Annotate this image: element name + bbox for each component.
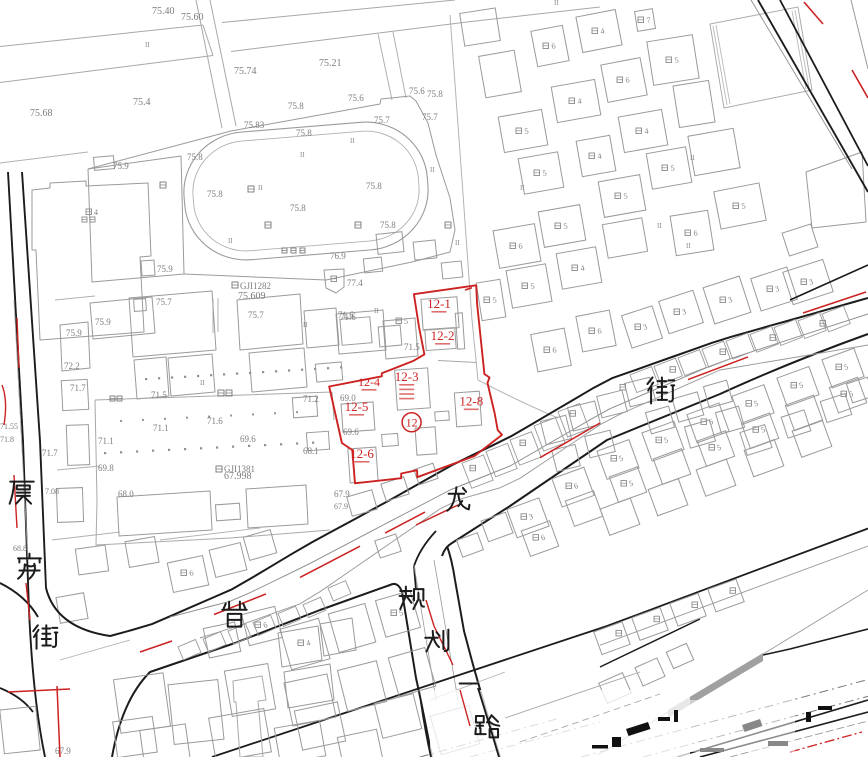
svg-text:II: II [657, 222, 662, 230]
svg-text:75.7: 75.7 [374, 115, 390, 125]
svg-text:69.6: 69.6 [240, 434, 256, 444]
svg-text:71.8: 71.8 [0, 435, 14, 444]
svg-text:12-2: 12-2 [431, 328, 455, 343]
svg-text:12-4: 12-4 [358, 375, 380, 389]
svg-text:II: II [374, 307, 379, 315]
svg-text:69.8: 69.8 [98, 463, 114, 473]
svg-text:75.6: 75.6 [348, 93, 364, 103]
svg-text:71.5: 71.5 [151, 390, 167, 400]
svg-text:75.8: 75.8 [366, 181, 382, 191]
svg-text:71.7: 71.7 [70, 383, 86, 393]
svg-text:75.83: 75.83 [244, 120, 265, 130]
svg-text:GJI1381: GJI1381 [224, 464, 255, 474]
svg-text:75.40: 75.40 [152, 6, 175, 17]
svg-text:72.2: 72.2 [64, 361, 80, 371]
svg-text:II: II [258, 184, 263, 192]
svg-text:75.9: 75.9 [113, 161, 129, 171]
svg-text:75.7: 75.7 [248, 310, 264, 320]
svg-text:68.8: 68.8 [13, 544, 27, 553]
svg-text:75.8: 75.8 [380, 220, 396, 230]
svg-text:4: 4 [94, 208, 98, 217]
svg-text:II: II [430, 166, 435, 174]
svg-text:II: II [554, 0, 559, 7]
svg-text:75.9: 75.9 [95, 317, 111, 327]
svg-text:67.9: 67.9 [334, 489, 350, 499]
svg-text:II: II [228, 237, 233, 245]
svg-text:75.74: 75.74 [234, 66, 257, 77]
svg-text:77.4: 77.4 [347, 278, 363, 288]
svg-text:75.8: 75.8 [290, 203, 306, 213]
svg-text:II: II [300, 151, 305, 159]
svg-text:75.60: 75.60 [181, 12, 204, 23]
svg-text:75.8: 75.8 [296, 128, 312, 138]
svg-text:75.9: 75.9 [157, 264, 173, 274]
svg-text:II: II [303, 321, 308, 329]
svg-text:II: II [520, 184, 525, 192]
svg-text:71.5: 71.5 [404, 342, 420, 352]
svg-text:II: II [455, 239, 460, 247]
svg-text:75.7: 75.7 [156, 297, 172, 307]
svg-text:67.9: 67.9 [334, 502, 348, 511]
svg-text:69.0: 69.0 [340, 393, 356, 403]
svg-text:69.6: 69.6 [343, 427, 359, 437]
svg-text:12-3: 12-3 [395, 369, 419, 384]
svg-text:75.4: 75.4 [133, 97, 151, 108]
svg-text:71.1: 71.1 [98, 436, 114, 446]
svg-text:75.8: 75.8 [427, 89, 443, 99]
svg-text:68.0: 68.0 [118, 489, 134, 499]
svg-text:12-1: 12-1 [427, 296, 451, 311]
svg-text:75.7: 75.7 [422, 112, 438, 122]
svg-text:68.1: 68.1 [303, 446, 319, 456]
svg-text:75.6: 75.6 [409, 86, 425, 96]
svg-text:75.9: 75.9 [66, 328, 82, 338]
svg-text:75.609: 75.609 [238, 291, 266, 302]
svg-text:75.21: 75.21 [319, 58, 342, 69]
svg-text:71.7: 71.7 [42, 448, 58, 458]
svg-text:II: II [690, 154, 695, 162]
svg-text:71.55: 71.55 [0, 422, 18, 431]
svg-text:75.8: 75.8 [207, 189, 223, 199]
svg-text:12-8: 12-8 [459, 394, 483, 409]
svg-text:67.9: 67.9 [55, 746, 71, 756]
svg-text:71.6: 71.6 [207, 416, 223, 426]
svg-text:12-6: 12-6 [350, 446, 374, 461]
svg-text:GJI1282: GJI1282 [240, 281, 271, 291]
svg-text:71.6: 71.6 [340, 312, 356, 322]
svg-text:71.1: 71.1 [153, 423, 169, 433]
svg-text:7.08: 7.08 [45, 487, 59, 496]
svg-text:5: 5 [404, 317, 408, 326]
svg-text:II: II [350, 137, 355, 145]
svg-text:II: II [200, 379, 205, 387]
svg-text:II: II [145, 41, 150, 49]
svg-text:75.8: 75.8 [187, 152, 203, 162]
svg-text:12: 12 [406, 416, 418, 430]
svg-text:75.8: 75.8 [288, 101, 304, 111]
svg-text:75.68: 75.68 [30, 108, 53, 119]
svg-text:76.9: 76.9 [330, 251, 346, 261]
svg-text:II: II [686, 242, 691, 250]
svg-text:71.2: 71.2 [303, 394, 319, 404]
